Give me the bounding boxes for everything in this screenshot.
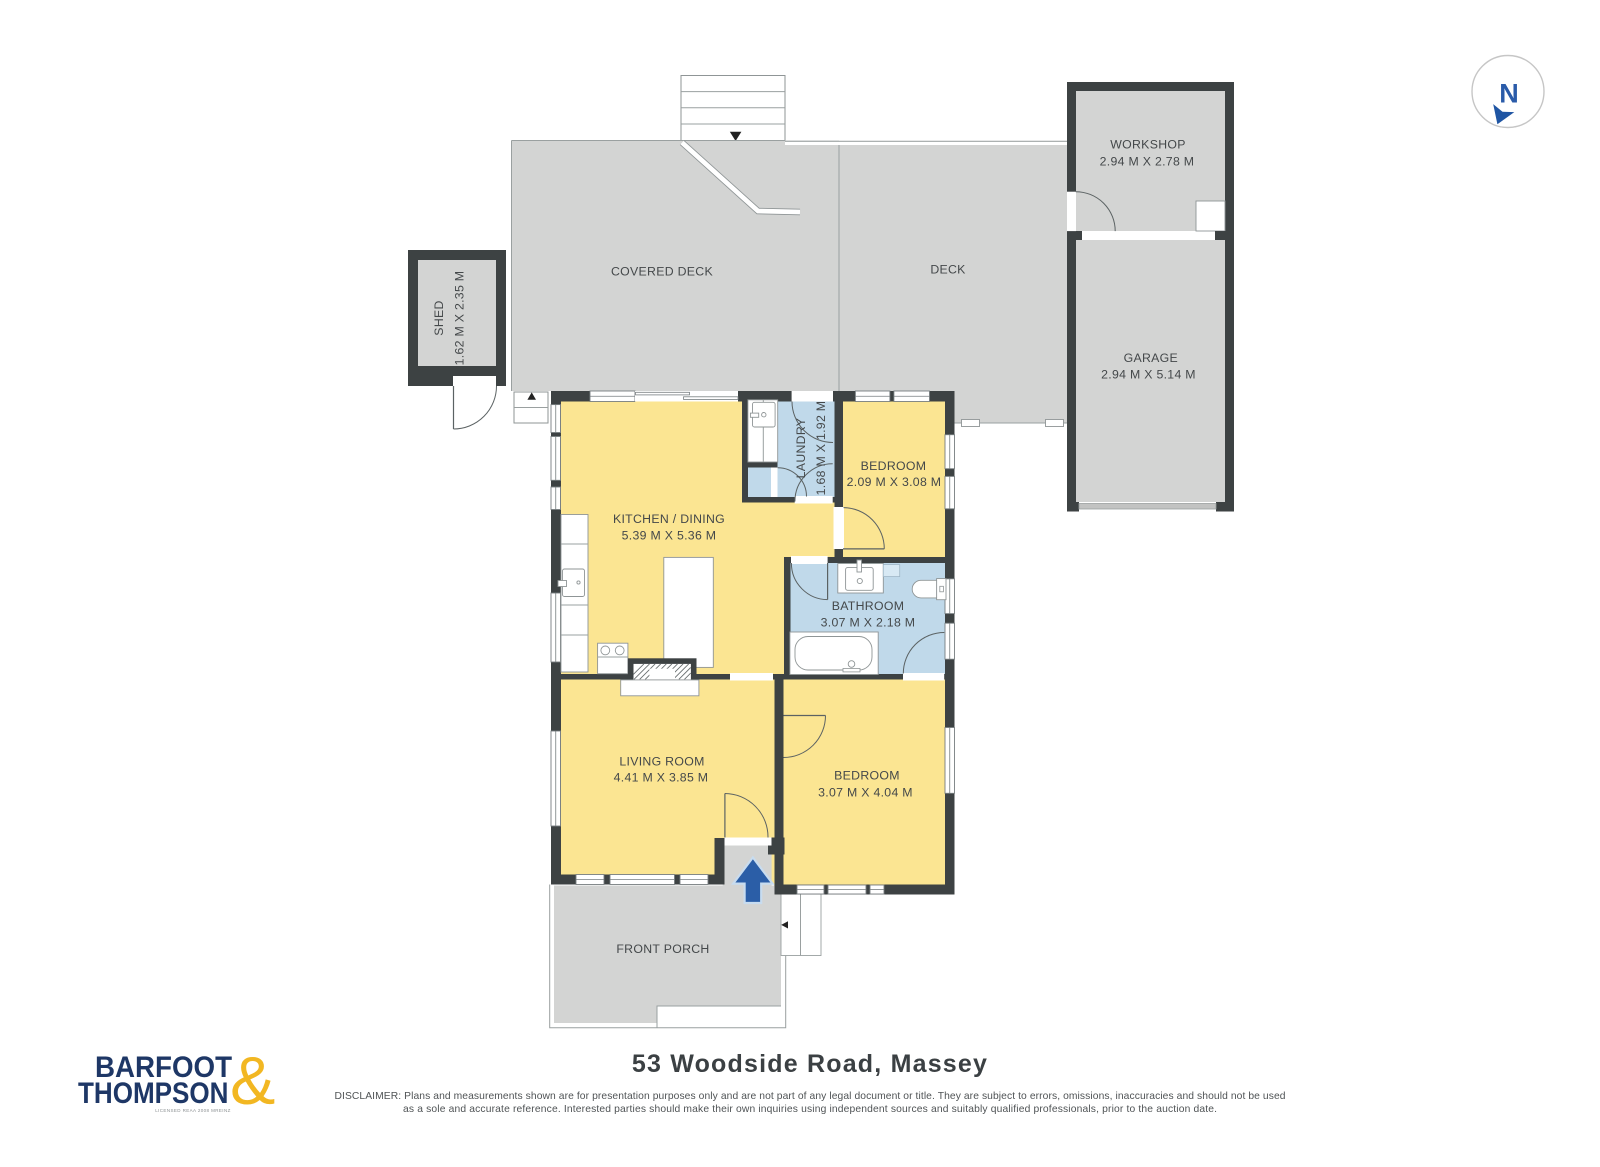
svg-text:BATHROOM: BATHROOM xyxy=(832,599,905,613)
svg-text:DECK: DECK xyxy=(930,263,966,277)
svg-text:4.41 M X 3.85 M: 4.41 M X 3.85 M xyxy=(614,771,709,785)
svg-text:1.62 M X 2.35 M: 1.62 M X 2.35 M xyxy=(453,271,467,366)
svg-text:BEDROOM: BEDROOM xyxy=(834,769,900,783)
svg-text:LIVING ROOM: LIVING ROOM xyxy=(619,755,704,769)
svg-text:2.09 M X 3.08 M: 2.09 M X 3.08 M xyxy=(847,475,942,489)
svg-text:5.39 M X 5.36 M: 5.39 M X 5.36 M xyxy=(622,529,717,543)
svg-text:BEDROOM: BEDROOM xyxy=(861,459,927,473)
svg-text:DISCLAIMER: Plans and measurem: DISCLAIMER: Plans and measurements shown… xyxy=(335,1091,1286,1102)
svg-text:&: & xyxy=(230,1043,275,1119)
svg-text:3.07 M X 4.04 M: 3.07 M X 4.04 M xyxy=(818,786,913,800)
svg-text:53 Woodside Road, Massey: 53 Woodside Road, Massey xyxy=(632,1050,988,1078)
svg-text:2.94 M X 2.78 M: 2.94 M X 2.78 M xyxy=(1100,155,1195,169)
svg-text:3.07 M X 2.18 M: 3.07 M X 2.18 M xyxy=(821,616,916,630)
svg-text:FRONT PORCH: FRONT PORCH xyxy=(616,942,709,956)
svg-text:as a sole and accurate referen: as a sole and accurate reference. Intere… xyxy=(403,1104,1217,1115)
svg-text:KITCHEN / DINING: KITCHEN / DINING xyxy=(613,512,725,526)
svg-text:GARAGE: GARAGE xyxy=(1124,351,1178,365)
svg-text:THOMPSON: THOMPSON xyxy=(78,1077,229,1110)
svg-text:1.68 M X 1.92 M: 1.68 M X 1.92 M xyxy=(814,401,828,496)
svg-text:LAUNDRY: LAUNDRY xyxy=(794,418,808,479)
svg-text:COVERED DECK: COVERED DECK xyxy=(611,265,713,279)
svg-text:SHED: SHED xyxy=(432,300,446,335)
svg-text:LICENSED REAA 2008 MREINZ: LICENSED REAA 2008 MREINZ xyxy=(155,1108,231,1113)
svg-text:2.94 M X 5.14 M: 2.94 M X 5.14 M xyxy=(1101,368,1196,382)
svg-text:N: N xyxy=(1499,79,1519,109)
svg-text:WORKSHOP: WORKSHOP xyxy=(1110,138,1186,152)
